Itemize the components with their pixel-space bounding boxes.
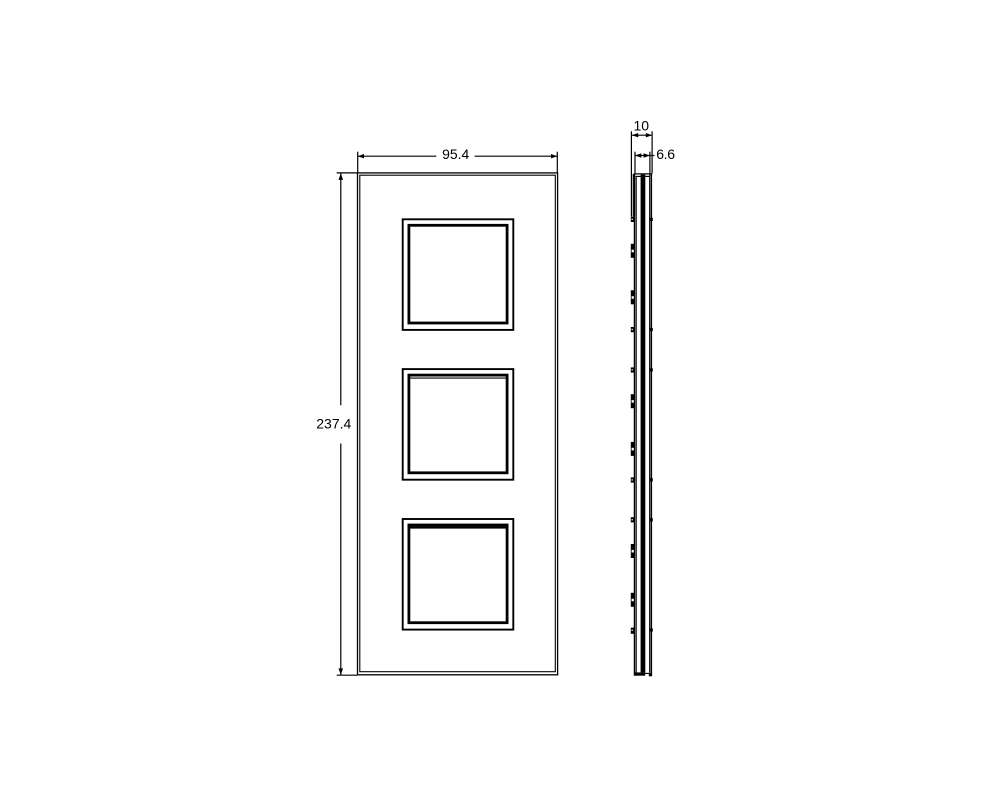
- svg-text:10: 10: [634, 118, 650, 134]
- svg-text:237.4: 237.4: [316, 416, 351, 432]
- svg-text:6.6: 6.6: [656, 146, 675, 162]
- svg-text:95.4: 95.4: [442, 146, 469, 162]
